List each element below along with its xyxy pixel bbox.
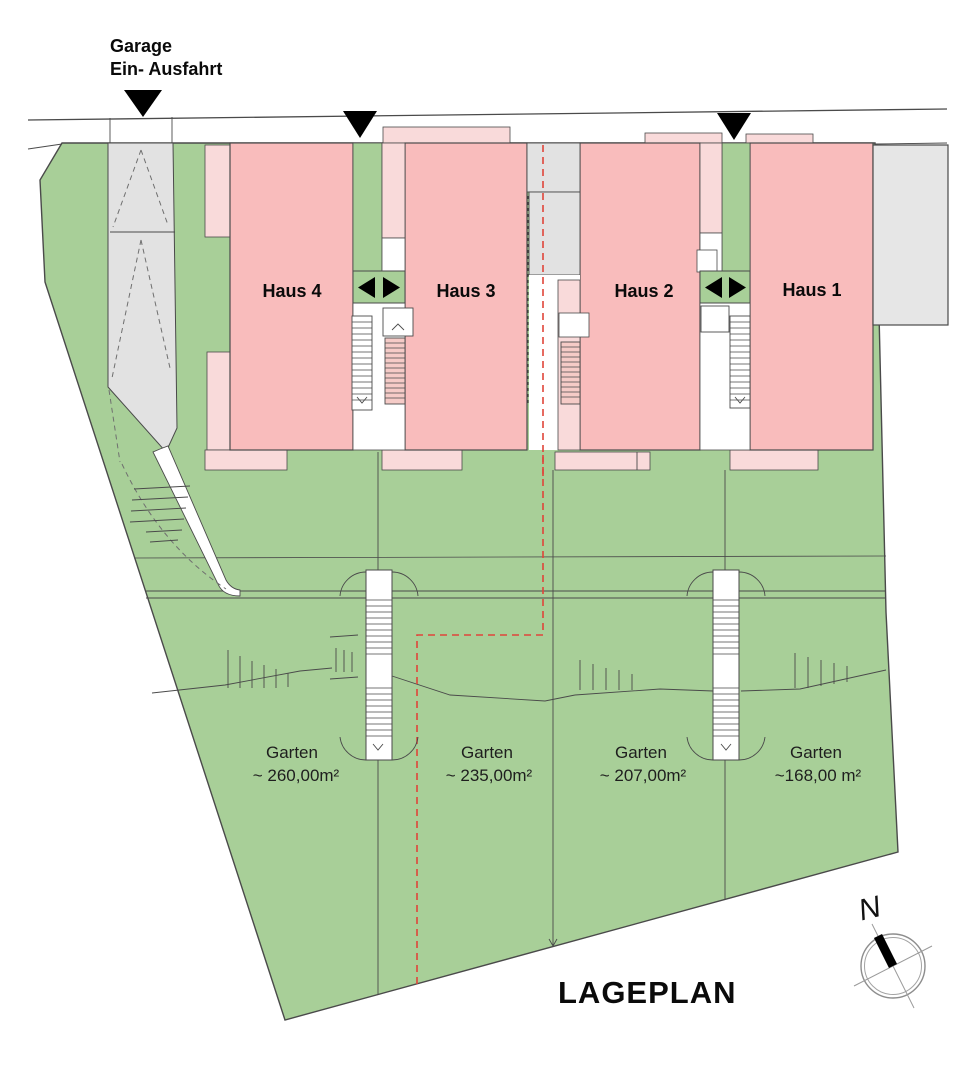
stair-haus4 [352,316,372,410]
garden-3-label: Garten [615,743,667,762]
garage-label-line2: Ein- Ausfahrt [110,59,222,79]
neighbor-building [873,145,948,325]
house-4-label: Haus 4 [262,281,321,301]
stair-haus2 [561,342,580,404]
terrace-haus4 [205,450,287,470]
garden-2-area: ~ 235,00m² [446,766,533,785]
garden-4-area: ~168,00 m² [775,766,862,785]
entry-strip-haus43 [352,143,413,450]
page-title: LAGEPLAN [558,975,737,1010]
siteplan-page: N Garage Ein- Ausfahrt Haus 4 Haus 3 Hau… [0,0,978,1088]
terrace-haus2 [555,452,650,470]
garden-1-area: ~ 260,00m² [253,766,340,785]
garden-1-label: Garten [266,743,318,762]
siteplan-drawing: N Garage Ein- Ausfahrt Haus 4 Haus 3 Hau… [0,0,978,1088]
entry-strip-haus32 [527,143,589,480]
garden-3-area: ~ 207,00m² [600,766,687,785]
garden-4-label: Garten [790,743,842,762]
entry-strip-haus21 [697,143,750,450]
house-2-label: Haus 2 [614,281,673,301]
garage-label-line1: Garage [110,36,172,56]
house-1-label: Haus 1 [782,280,841,300]
garden-2-label: Garten [461,743,513,762]
house-3-label: Haus 3 [436,281,495,301]
terrace-haus1 [730,450,818,470]
house-1 [730,134,873,470]
terrace-haus3 [382,450,462,470]
